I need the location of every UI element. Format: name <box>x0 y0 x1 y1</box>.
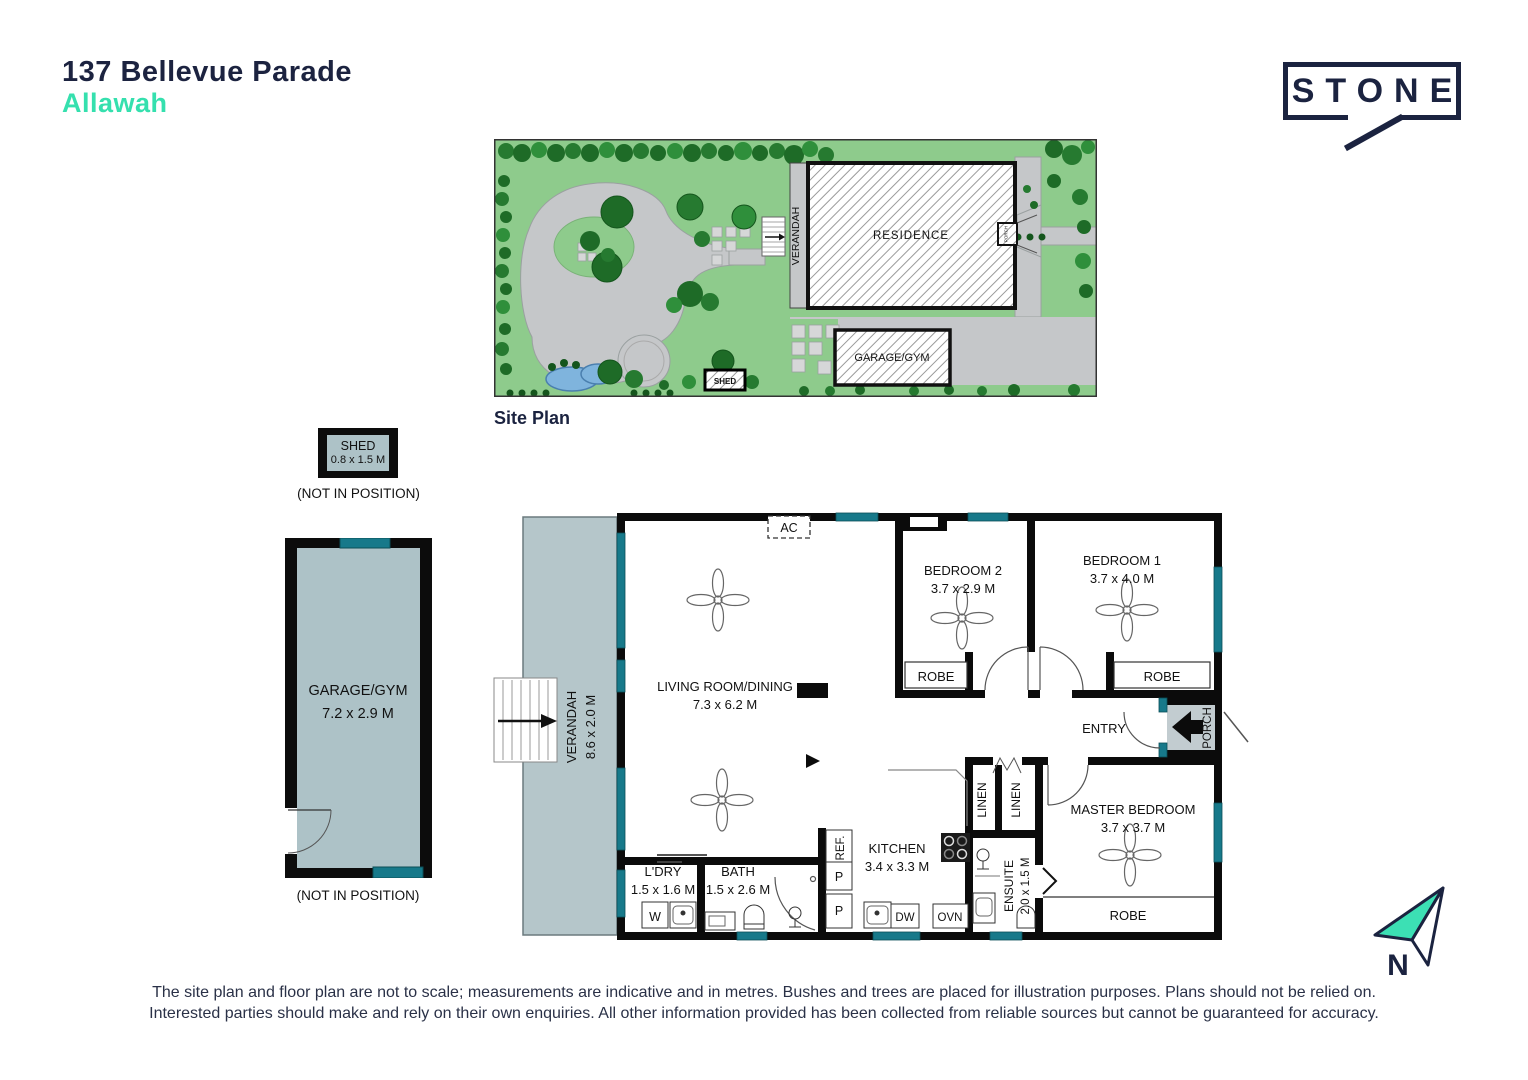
disclaimer-line-2: Interested parties should make and rely … <box>0 1003 1528 1024</box>
bottom-verge <box>790 385 1097 397</box>
property-suburb: Allawah <box>62 88 168 119</box>
kitchen-name: KITCHEN <box>868 841 925 856</box>
porch-path-line <box>1224 712 1248 742</box>
porch-label: PORCH <box>1202 707 1214 749</box>
bedroom1-size: 3.7 x 4.0 M <box>1090 571 1154 586</box>
disclaimer: The site plan and floor plan are not to … <box>0 982 1528 1024</box>
bath-size: 1.5 x 2.6 M <box>706 882 770 897</box>
ac-label: AC <box>780 521 797 535</box>
floor-plan: AC LIVING ROOM/DINING 7.3 x 6.2 M BEDROO… <box>480 505 1260 955</box>
property-address: 137 Bellevue Parade <box>62 56 352 89</box>
site-plan: VERANDAH RESIDENCE PORCH GARAGE/GYM SHED <box>494 139 1097 397</box>
bath-name: BATH <box>721 864 755 879</box>
cooktop <box>941 833 970 862</box>
site-stairs <box>762 217 785 256</box>
verandah-stairs <box>494 678 557 762</box>
linen-label-1: LINEN <box>975 782 989 817</box>
shed-note: (NOT IN POSITION) <box>296 486 421 501</box>
shed-name: SHED <box>341 439 376 453</box>
kitchen-size: 3.4 x 3.3 M <box>865 859 929 874</box>
living-name: LIVING ROOM/DINING <box>657 679 793 694</box>
fridge-label: REF. <box>835 836 847 861</box>
laundry-name: L'DRY <box>645 864 682 879</box>
stone-logo-tail <box>1338 111 1433 153</box>
living-size: 7.3 x 6.2 M <box>693 697 757 712</box>
site-residence-label: RESIDENCE <box>873 230 949 242</box>
disclaimer-line-1: The site plan and floor plan are not to … <box>0 982 1528 1003</box>
pantry-label-1: P <box>835 870 843 884</box>
pantry-label-2: P <box>835 904 843 918</box>
site-shed-label: SHED <box>714 377 736 386</box>
shed-interior: SHED 0.8 x 1.5 M <box>327 435 389 471</box>
site-verandah-label: VERANDAH <box>790 207 802 265</box>
robe-bedroom1-label: ROBE <box>1144 669 1181 684</box>
garage-note: (NOT IN POSITION) <box>278 888 438 903</box>
verandah-name: VERANDAH <box>564 691 579 763</box>
linen-label-2: LINEN <box>1009 782 1023 817</box>
ac-unit: AC <box>768 516 810 538</box>
robe-master-label: ROBE <box>1110 908 1147 923</box>
bedroom2-vent <box>910 517 938 527</box>
shed-size: 0.8 x 1.5 M <box>331 454 385 467</box>
oven-label: OVN <box>938 912 963 924</box>
site-garage-label: GARAGE/GYM <box>854 352 929 364</box>
laundry-size: 1.5 x 1.6 M <box>631 882 695 897</box>
shed-figure: SHED 0.8 x 1.5 M <box>318 428 398 478</box>
washer-label: W <box>649 910 661 924</box>
north-compass: N <box>1365 880 1460 980</box>
bedroom2-size: 3.7 x 2.9 M <box>931 581 995 596</box>
site-porch-label: PORCH <box>1004 226 1009 242</box>
master-size: 3.7 x 3.7 M <box>1101 820 1165 835</box>
north-label: N <box>1387 949 1409 980</box>
garage-name: GARAGE/GYM <box>308 683 407 699</box>
garage-figure: GARAGE/GYM 7.2 x 2.9 M <box>285 538 432 878</box>
ensuite-name: ENSUITE <box>1002 860 1016 912</box>
robe-bedroom2-label: ROBE <box>918 669 955 684</box>
ensuite-size: 2.0 x 1.5 M <box>1020 858 1032 915</box>
bedroom2-name: BEDROOM 2 <box>924 563 1002 578</box>
garage-size: 7.2 x 2.9 M <box>322 706 394 722</box>
bedroom1-name: BEDROOM 1 <box>1083 553 1161 568</box>
entry-label: ENTRY <box>1082 721 1126 736</box>
master-name: MASTER BEDROOM <box>1071 802 1196 817</box>
stone-logo-text: STONE <box>1292 72 1464 111</box>
dishwasher-label: DW <box>895 912 914 924</box>
verandah-size: 8.6 x 2.0 M <box>583 695 598 759</box>
site-plan-caption: Site Plan <box>494 408 570 429</box>
